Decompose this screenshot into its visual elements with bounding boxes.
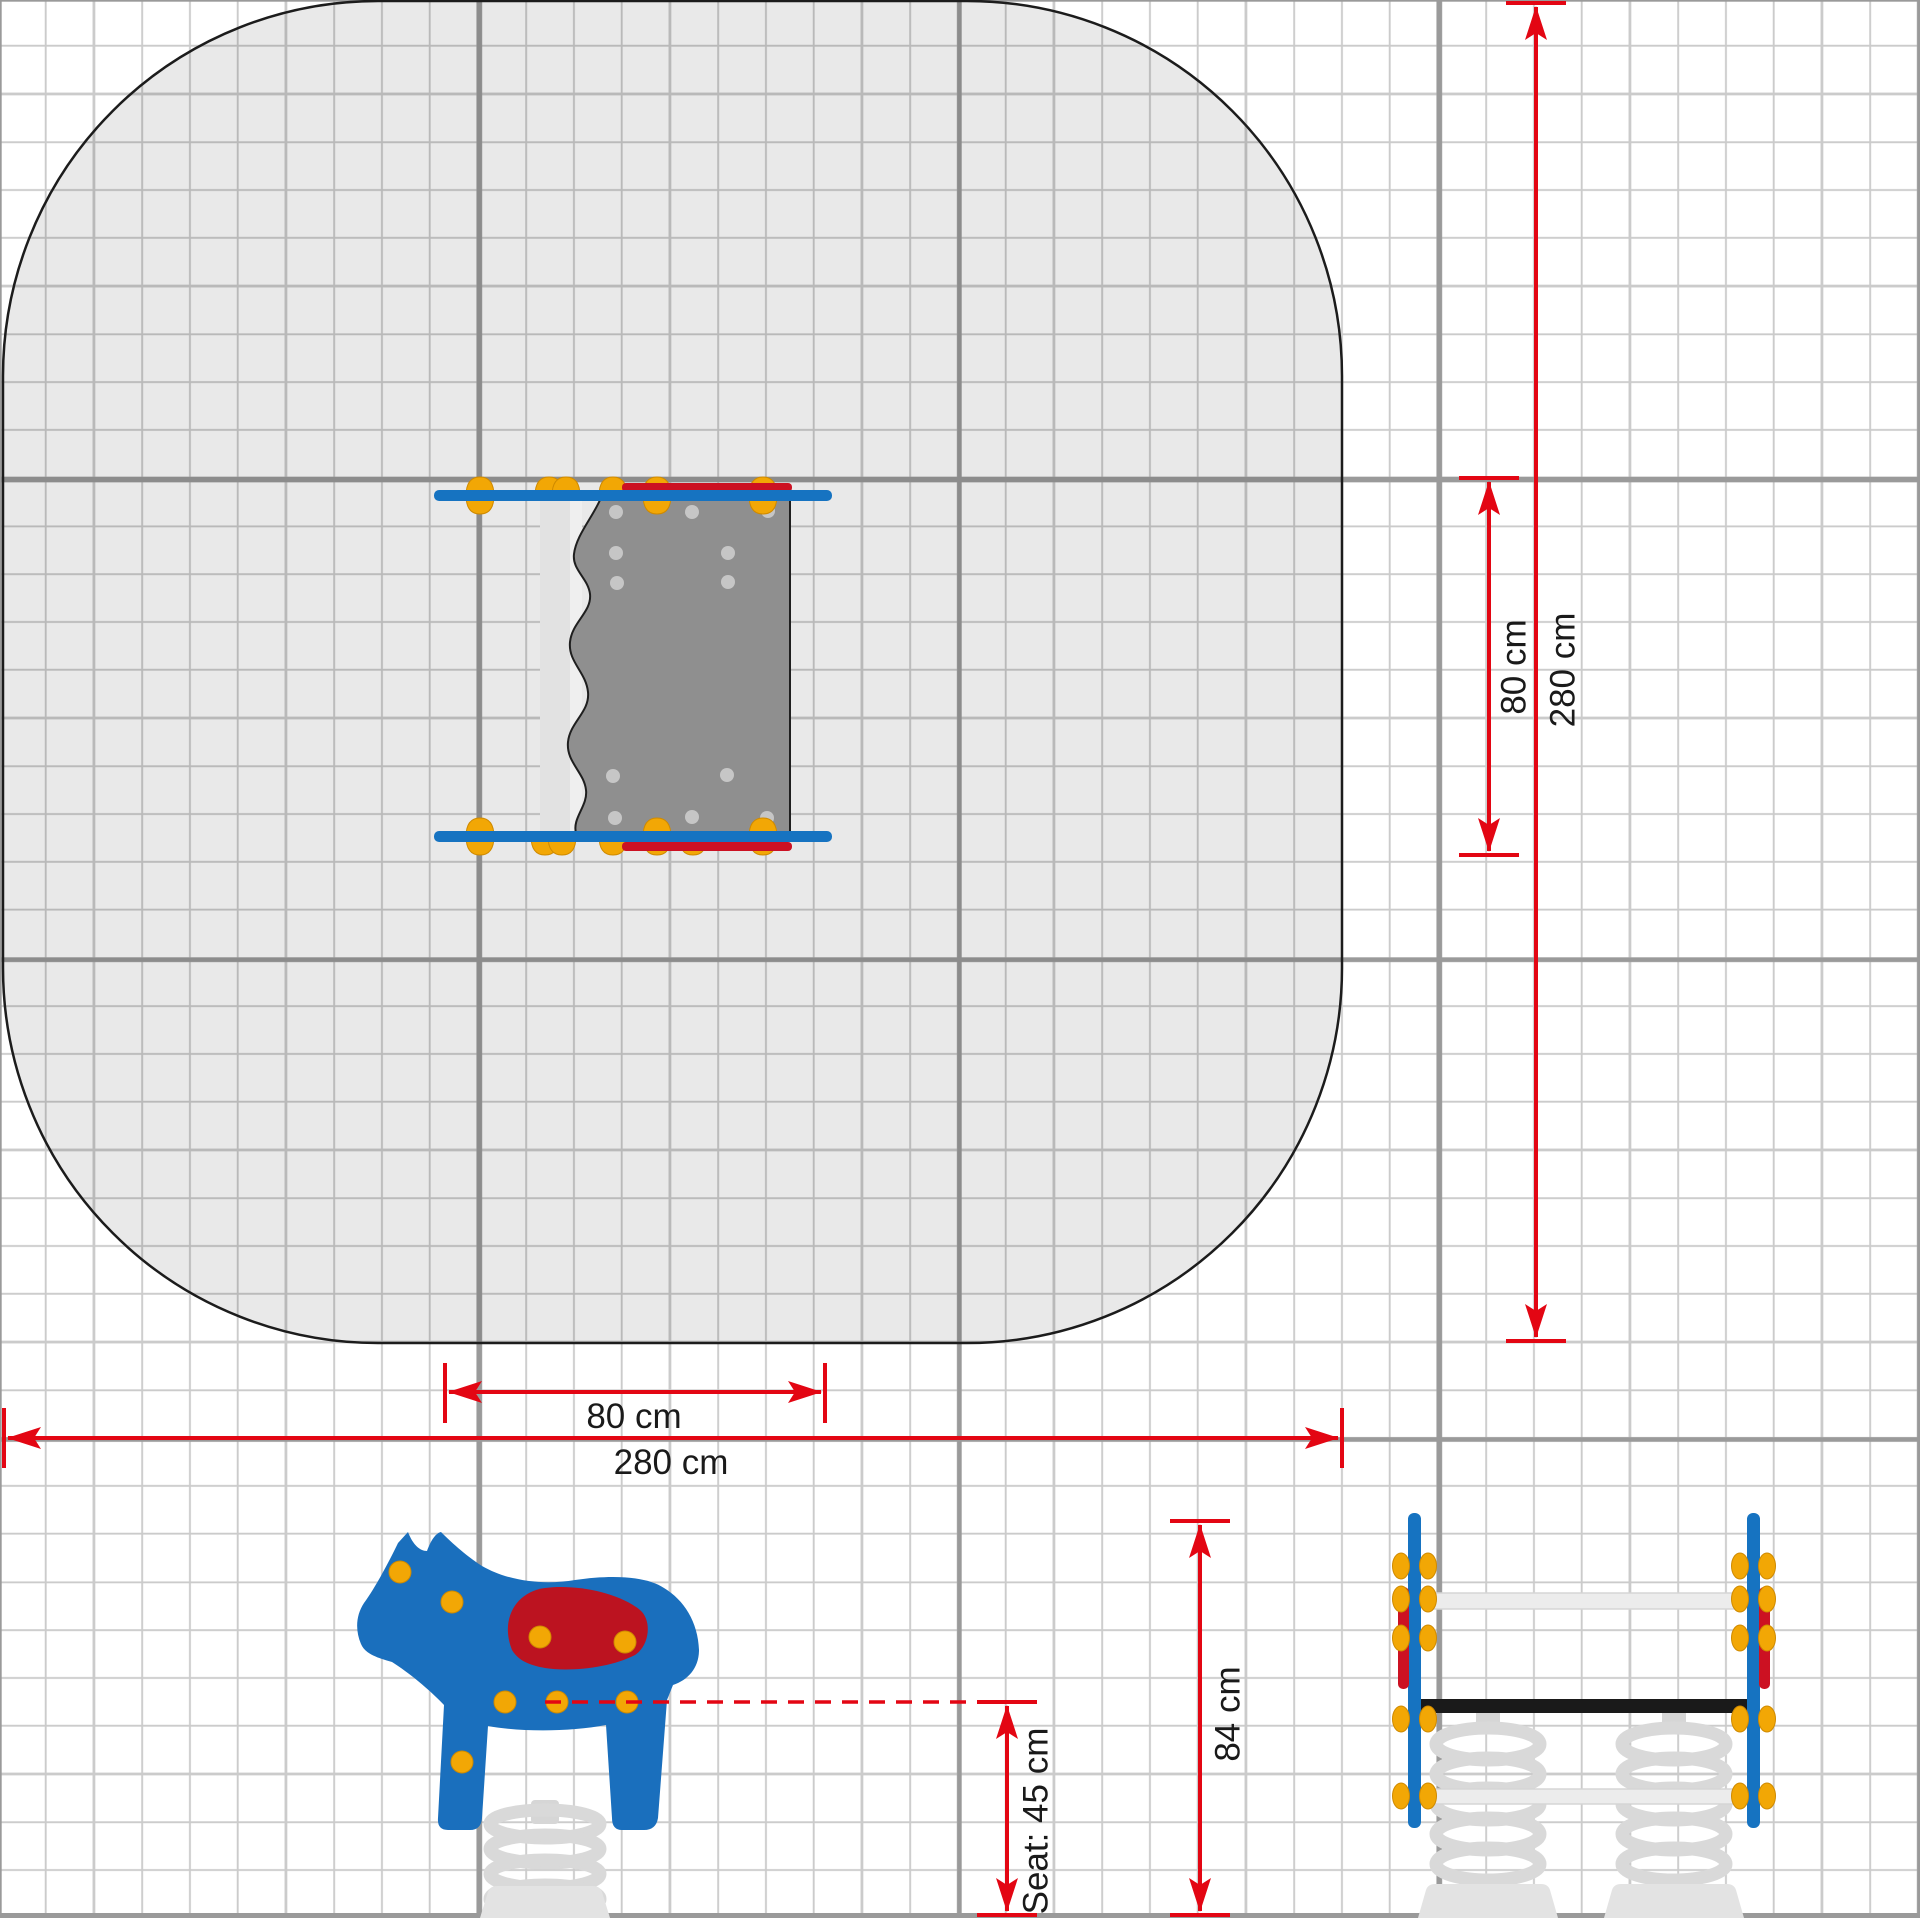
pole-shadow bbox=[540, 500, 570, 833]
dim-label-total-height: 84 cm bbox=[1209, 1666, 1248, 1761]
front-view bbox=[1393, 1513, 1776, 1918]
plan-view bbox=[3, 1, 1342, 1343]
side-view bbox=[357, 1532, 699, 1918]
plan-rail-bottom bbox=[434, 831, 832, 842]
front-footrest-bar bbox=[1419, 1789, 1749, 1804]
front-handlebar bbox=[1419, 1593, 1749, 1609]
dim-label-item-width: 80 cm bbox=[586, 1397, 681, 1436]
playground-plan-diagram: 80 cm 280 cm 80 cm 280 cm bbox=[0, 0, 1920, 1918]
dim-label-zone-depth: 280 cm bbox=[1544, 613, 1583, 728]
dim-label-item-depth: 80 cm bbox=[1495, 619, 1534, 714]
front-post-right bbox=[1747, 1513, 1760, 1828]
front-post-left bbox=[1408, 1513, 1421, 1828]
plan-rail-top bbox=[434, 490, 832, 501]
dim-label-zone-width: 280 cm bbox=[614, 1443, 729, 1482]
front-base-left bbox=[1418, 1884, 1558, 1918]
dim-label-seat-height: Seat: 45 cm bbox=[1017, 1728, 1056, 1915]
top-view-horse-shape bbox=[568, 500, 790, 833]
horse-spring-base bbox=[480, 1886, 610, 1918]
front-base-right bbox=[1604, 1884, 1744, 1918]
front-seat-bar bbox=[1412, 1699, 1756, 1713]
diagram-canvas: 80 cm 280 cm 80 cm 280 cm bbox=[0, 0, 1920, 1918]
